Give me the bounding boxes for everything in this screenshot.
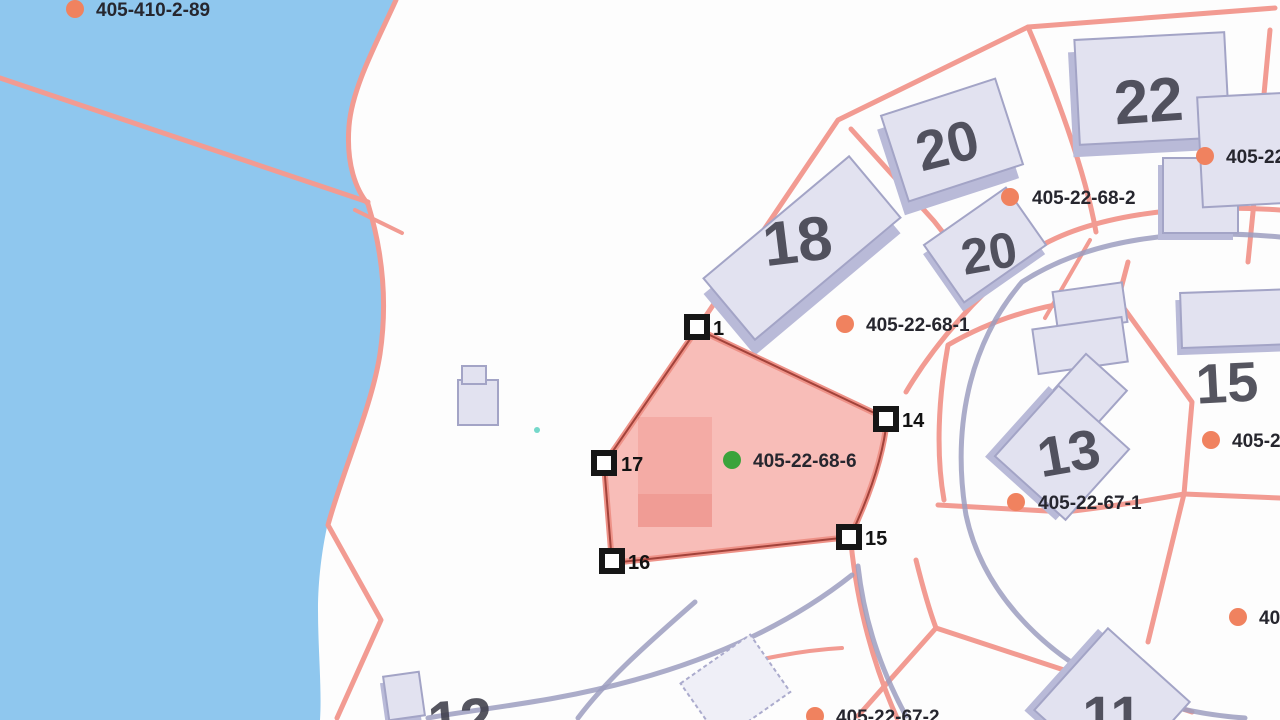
selected-parcel-id-text: 405-22-68-6: [753, 451, 857, 472]
southwest-road-outer: [428, 575, 852, 718]
cadastral-label: 40: [1229, 608, 1280, 629]
parcel-number-label: 12: [425, 685, 495, 720]
southwest-road-inner: [578, 602, 695, 718]
building-15: [1175, 289, 1280, 355]
parcel-number-label: 11: [1082, 684, 1141, 720]
parcel-point-dot: [1202, 431, 1220, 449]
vertex-marker-number: 15: [865, 528, 887, 550]
cadastral-id-text: 405-22-67-2: [836, 707, 940, 720]
parcel-point-dot: [66, 0, 84, 18]
parcel-point-dot: [1229, 608, 1247, 626]
cadastral-id-text: 405-2: [1232, 431, 1280, 452]
vertex-marker-square[interactable]: [876, 409, 896, 429]
cadastral-map-view[interactable]: 1820222013151112 405-410-2-89405-22-68-2…: [0, 0, 1280, 720]
vertex-marker-square[interactable]: [839, 527, 859, 547]
vertex-marker-number: 17: [621, 454, 643, 476]
building-bottom-center: [681, 635, 791, 720]
parcel-number-label: 13: [1032, 416, 1104, 489]
cadastral-label: 405-22-67-2: [806, 707, 940, 720]
cadastral-label: 405-22-68-2: [1001, 188, 1136, 209]
parcel-point-dot: [806, 707, 824, 720]
cadastral-label: 405-2: [1202, 431, 1280, 452]
vertex-marker[interactable]: 14: [876, 409, 925, 432]
south-road-line: [858, 566, 906, 716]
parcel-point-dot: [1007, 493, 1025, 511]
cadastral-id-text: 405-22-68-1: [866, 315, 970, 336]
water-area: [0, 0, 396, 720]
vertex-marker[interactable]: 15: [839, 527, 887, 550]
building-bottom-left-small: [379, 672, 426, 720]
vertex-marker-square[interactable]: [594, 453, 614, 473]
cadastral-id-text: 40: [1259, 608, 1280, 629]
building-shore-small: [458, 366, 498, 425]
vertex-marker-number: 1: [713, 318, 724, 340]
south-road-east-boundary: [916, 560, 936, 628]
cadastral-id-text: 405-22-67-1: [1038, 493, 1142, 514]
parcel-number-label: 15: [1194, 349, 1260, 415]
parcel-point-dot: [836, 315, 854, 333]
parcel-number-label: 18: [759, 203, 836, 280]
vertex-marker-number: 16: [628, 552, 650, 574]
vertex-marker-square[interactable]: [602, 551, 622, 571]
cadastral-id-text: 405-22-68-2: [1032, 188, 1136, 209]
vertex-marker[interactable]: 1: [687, 317, 724, 340]
scan-artifact-dot: [534, 427, 540, 433]
parcel-number-label: 22: [1112, 65, 1186, 139]
vertex-marker-number: 14: [902, 410, 925, 432]
cadastral-id-text: 405-22-: [1226, 147, 1280, 168]
selected-parcel-building-footprint-lower: [638, 494, 712, 527]
parcel-number-label: 20: [957, 221, 1022, 286]
selected-parcel-dot: [723, 451, 741, 469]
cadastral-label: 405-22-68-1: [836, 315, 970, 336]
map-canvas[interactable]: 1820222013151112 405-410-2-89405-22-68-2…: [0, 0, 1280, 720]
vertex-marker-square[interactable]: [687, 317, 707, 337]
parcel-point-dot: [1196, 147, 1214, 165]
parcel-point-dot: [1001, 188, 1019, 206]
cadastral-id-text: 405-410-2-89: [96, 0, 210, 21]
